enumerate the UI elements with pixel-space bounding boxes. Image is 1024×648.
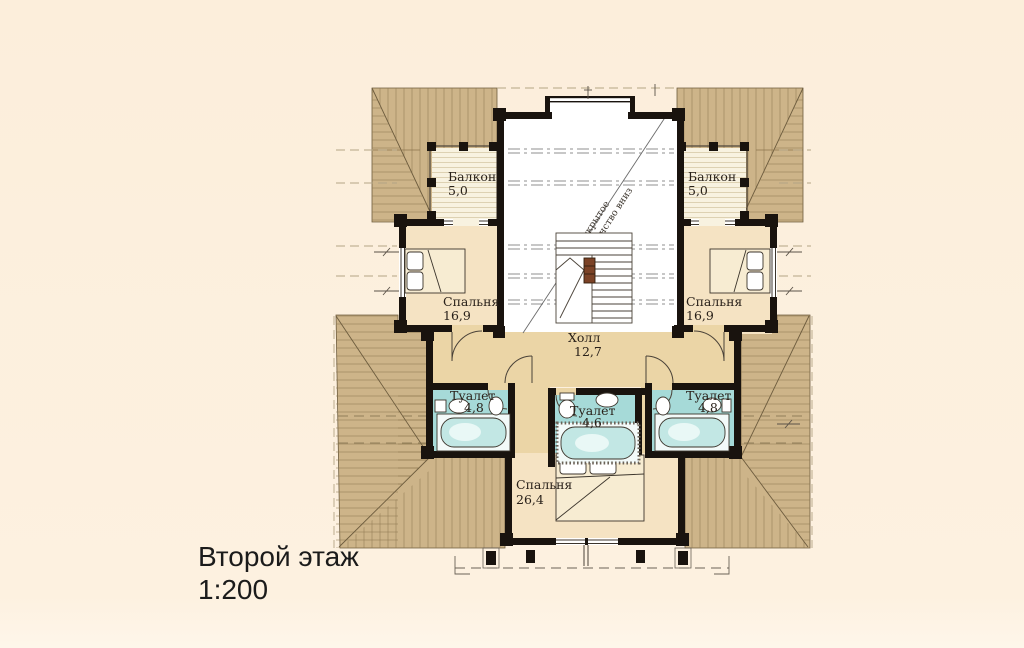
washer-left xyxy=(435,400,446,412)
bathtub-right xyxy=(655,414,729,451)
room-area-toilet-left: 4,8 xyxy=(464,400,484,415)
staircase xyxy=(556,233,632,323)
room-area-bedroom-right: 16,9 xyxy=(686,308,714,323)
door-gap-balcony-right xyxy=(699,219,725,226)
floor-plan: открытое пространство вниз xyxy=(0,0,1024,648)
room-area-bedroom-bottom: 26,4 xyxy=(516,492,544,507)
window-bottom-bedroom-south xyxy=(556,538,618,545)
bed-right xyxy=(710,249,770,293)
door-gap-balcony-left xyxy=(453,219,479,226)
room-label-bedroom-left: Спальня xyxy=(443,294,499,309)
sink-right-icon xyxy=(656,397,670,415)
bed-left xyxy=(405,249,465,293)
stair-newel-post xyxy=(584,258,595,283)
room-area-balcony-right: 5,0 xyxy=(688,183,708,198)
room-area-toilet-right: 4,8 xyxy=(698,400,718,415)
bathtub-left xyxy=(437,414,510,451)
title-block: Второй этаж 1:200 xyxy=(198,540,359,606)
room-area-bedroom-left: 16,9 xyxy=(443,308,471,323)
room-area-hall: 12,7 xyxy=(574,344,602,359)
room-area-toilet-center: 4,6 xyxy=(582,415,602,430)
floor-title: Второй этаж xyxy=(198,540,359,573)
room-label-bedroom-right: Спальня xyxy=(686,294,742,309)
wc-center-tank xyxy=(560,393,574,400)
scale-label: 1:200 xyxy=(198,573,359,606)
porch xyxy=(455,545,729,574)
page: открытое пространство вниз xyxy=(0,0,1024,648)
room-label-bedroom-bottom: Спальня xyxy=(516,477,572,492)
room-label-balcony-right: Балкон xyxy=(688,169,736,184)
room-label-hall: Холл xyxy=(568,330,600,345)
window-right-wing-east xyxy=(770,248,777,297)
room-area-balcony-left: 5,0 xyxy=(448,183,468,198)
door-gap-toilet-right xyxy=(652,383,672,390)
room-label-balcony-left: Балкон xyxy=(448,169,496,184)
